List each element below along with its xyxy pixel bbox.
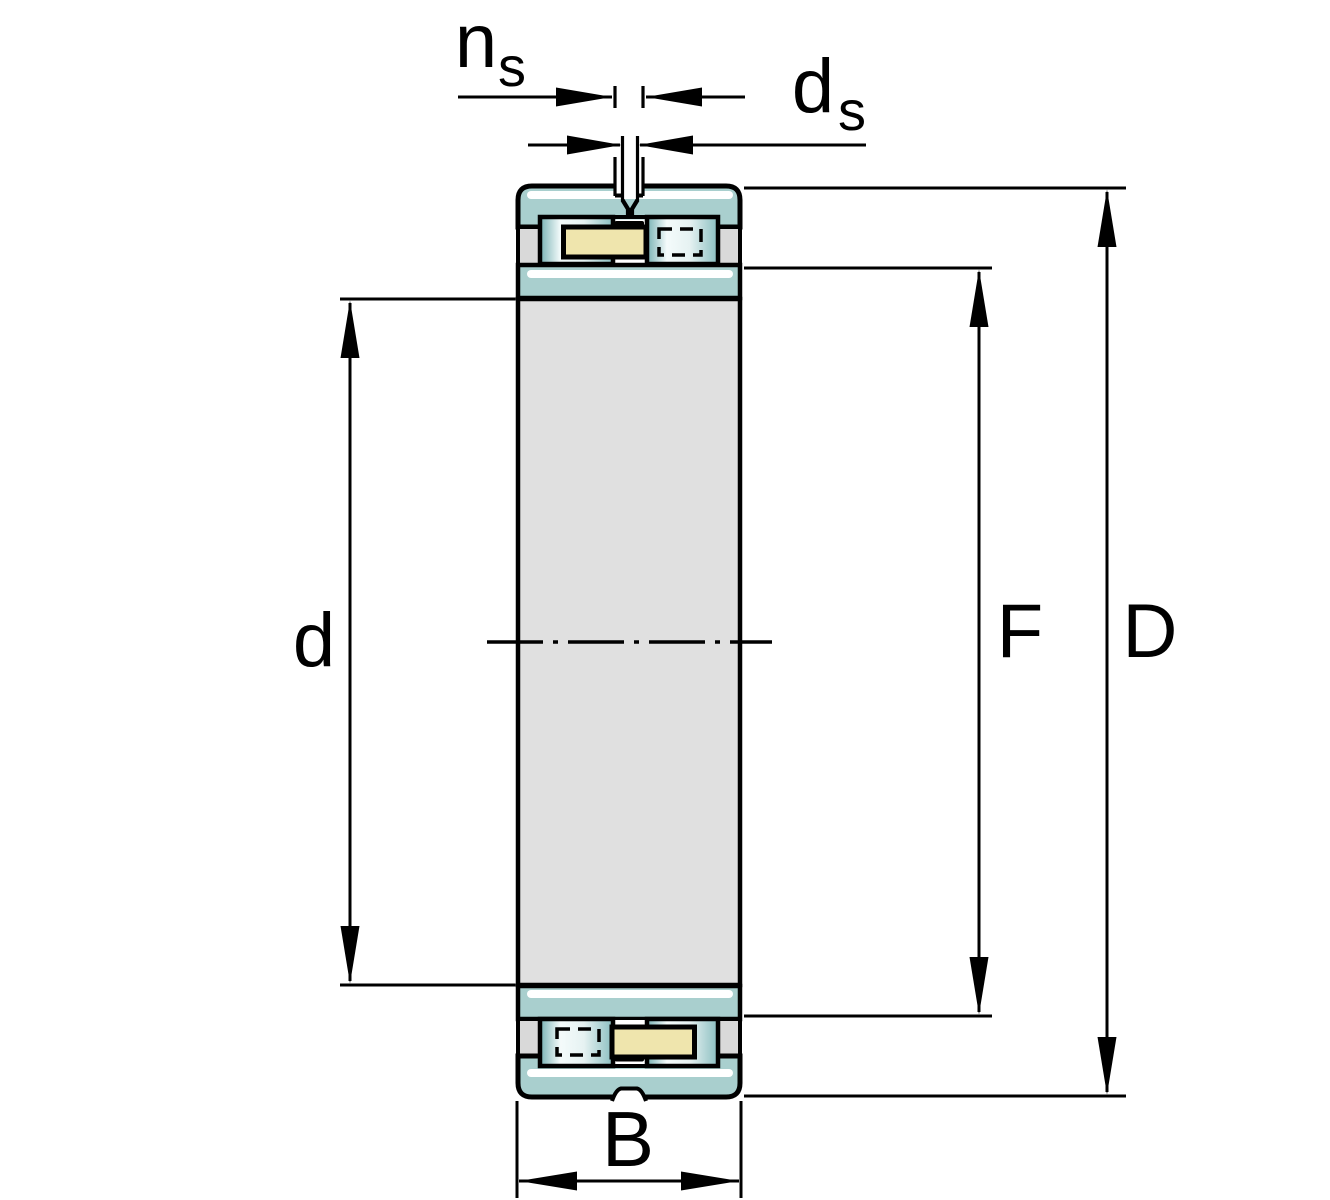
roller-top-right — [647, 217, 718, 264]
label-hole-diameter: d — [792, 44, 834, 129]
label-hole-diameter-subscript: s — [838, 79, 866, 142]
outer-ring-bottom-highlight — [527, 1069, 733, 1077]
outer-ring-bottom-land-right — [718, 1019, 740, 1056]
label-groove-width: n — [455, 0, 497, 84]
cage-bar-bottom — [612, 1027, 695, 1057]
label-groove-width-subscript: s — [498, 35, 526, 98]
cage-bar-top — [564, 227, 647, 257]
label-width: B — [602, 1095, 654, 1183]
outer-ring-bottom-land-left — [518, 1019, 540, 1056]
bore-body — [518, 299, 740, 985]
inner-ring-bottom-highlight — [527, 990, 733, 998]
diagram-canvas: n s d s d F D B — [0, 0, 1330, 1200]
label-raceway-diameter: F — [997, 589, 1043, 674]
inner-ring-top-highlight — [527, 270, 733, 278]
outer-ring-top-land-right — [718, 227, 740, 265]
outer-ring-top-land-left — [518, 227, 540, 265]
label-outside-diameter: D — [1123, 589, 1178, 674]
roller-bottom-left — [540, 1019, 613, 1066]
bearing-cross-section-diagram: n s d s d F D B — [0, 0, 1330, 1200]
label-bore-diameter: d — [293, 598, 335, 683]
inner-ring-top — [518, 265, 740, 298]
